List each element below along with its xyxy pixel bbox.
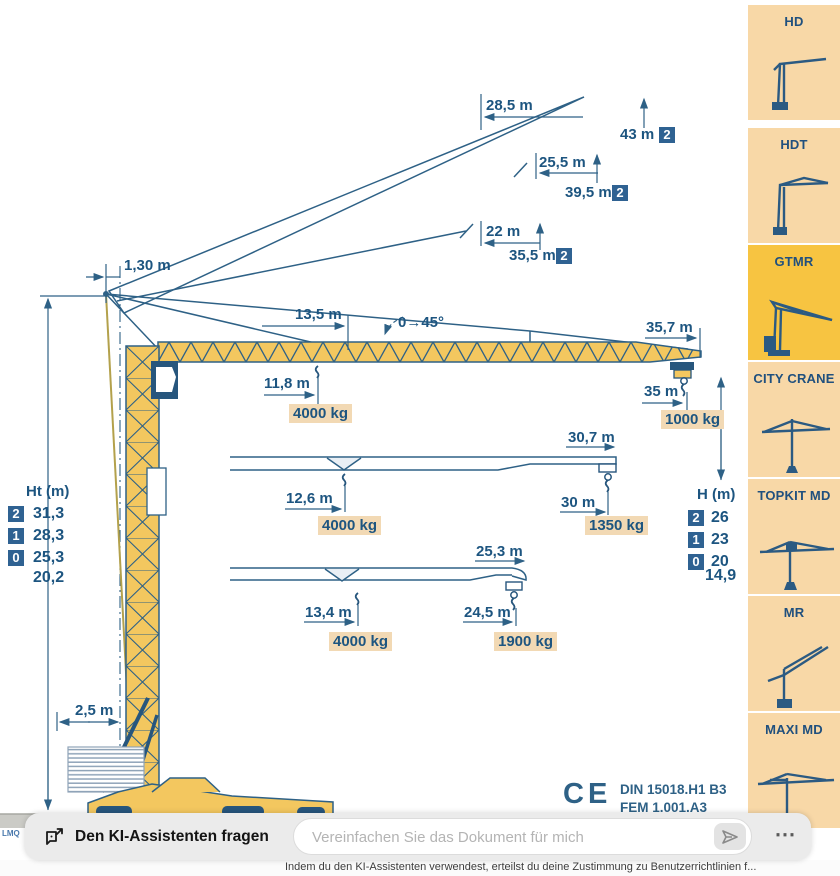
crane-icon-topkit-md	[748, 512, 840, 592]
config-badge: 0	[8, 550, 24, 566]
dim-jib-root: 13,5 m	[295, 306, 342, 323]
dim-tip3-radius: 24,5 m	[464, 604, 511, 621]
dim-pos1-height: 43 m	[620, 126, 654, 143]
ht-value: 25,3	[33, 549, 64, 567]
load-label: 1350 kg	[585, 516, 648, 535]
config-badge: 2	[612, 185, 628, 201]
h-value: 26	[711, 509, 729, 527]
sidebar-item-mr[interactable]: MR	[748, 596, 840, 711]
crane-icon-mr	[748, 629, 840, 709]
h-table-header: H (m)	[697, 486, 735, 503]
dim-tip1-radius: 35 m	[644, 383, 678, 400]
ai-disclaimer-text: Indem du den KI-Assistenten verwendest, …	[285, 861, 756, 873]
dim-top-offset: 1,30 m	[124, 257, 171, 274]
ai-prompt-input[interactable]	[310, 819, 694, 856]
dim-pos3-radius: 22 m	[486, 223, 520, 240]
ht-value: 20,2	[33, 569, 64, 587]
sidebar-item-label: TOPKIT MD	[748, 488, 840, 503]
sidebar-item-label: HDT	[748, 137, 840, 152]
dim-hook1-radius: 11,8 m	[264, 375, 310, 392]
load-label: 4000 kg	[329, 632, 392, 651]
crane-type-sidebar: HD HDT GTMR CITY CRANE TOPKI	[748, 0, 840, 876]
sidebar-item-maxi-md[interactable]: MAXI MD	[748, 713, 840, 828]
config-badge: 1	[688, 532, 704, 548]
sidebar-item-topkit-md[interactable]: TOPKIT MD	[748, 479, 840, 594]
config-badge: 2	[556, 248, 572, 264]
config-badge: 2	[8, 506, 24, 522]
crane-icon-gtmr	[748, 278, 840, 358]
crane-icon-city-crane	[748, 395, 840, 475]
dim-pos2-height: 39,5 m	[565, 184, 612, 201]
dim-jib2-length: 30,7 m	[568, 429, 615, 446]
paper-plane-icon	[722, 830, 738, 844]
crane-icon-hdt	[748, 161, 840, 241]
more-options-button[interactable]: ⋯	[766, 822, 806, 847]
dim-jib3-length: 25,3 m	[476, 543, 523, 560]
sidebar-item-hd[interactable]: HD	[748, 5, 840, 120]
dim-hook3-radius: 13,4 m	[305, 604, 352, 621]
h-value: 14,9	[705, 567, 736, 585]
dim-hook2-radius: 12,6 m	[286, 490, 333, 507]
load-label: 4000 kg	[289, 404, 352, 423]
config-badge: 0	[688, 554, 704, 570]
config-badge: 1	[8, 528, 24, 544]
ai-assistant-title: Den KI-Assistenten fragen	[75, 828, 269, 846]
standard-din: DIN 15018.H1 B3	[620, 782, 727, 797]
config-badge: 2	[659, 127, 675, 143]
dim-base-width: 2,5 m	[75, 702, 113, 719]
ai-prompt-field[interactable]	[293, 818, 752, 855]
crane-icon-hd	[748, 38, 840, 118]
dim-pos2-radius: 25,5 m	[539, 154, 586, 171]
sidebar-item-label: HD	[748, 14, 840, 29]
h-value: 23	[711, 531, 729, 549]
load-label: 4000 kg	[318, 516, 381, 535]
sidebar-item-gtmr[interactable]: GTMR	[748, 245, 840, 360]
side-note: LMQ	[2, 829, 20, 838]
dim-luffing-angle: 0→45°	[398, 314, 444, 331]
sidebar-item-label: CITY CRANE	[748, 371, 840, 386]
dim-pos3-height: 35,5 m	[509, 247, 556, 264]
ce-mark: CE	[563, 778, 611, 811]
ai-assistant-bar: Den KI-Assistenten fragen	[25, 813, 811, 860]
dim-jib-full: 35,7 m	[646, 319, 693, 336]
config-badge: 2	[688, 510, 704, 526]
sidebar-item-city-crane[interactable]: CITY CRANE	[748, 362, 840, 477]
chat-assistant-icon	[43, 826, 65, 848]
sidebar-item-label: GTMR	[748, 254, 840, 269]
ht-table-header: Ht (m)	[26, 483, 69, 500]
sidebar-item-label: MR	[748, 605, 840, 620]
load-label: 1000 kg	[661, 410, 724, 429]
load-label: 1900 kg	[494, 632, 557, 651]
dim-pos1-radius: 28,5 m	[486, 97, 533, 114]
sidebar-item-label: MAXI MD	[748, 722, 840, 737]
ht-value: 28,3	[33, 527, 64, 545]
sidebar-item-hdt[interactable]: HDT	[748, 128, 840, 243]
ht-value: 31,3	[33, 505, 64, 523]
dim-tip2-radius: 30 m	[561, 494, 595, 511]
send-button[interactable]	[714, 823, 746, 850]
